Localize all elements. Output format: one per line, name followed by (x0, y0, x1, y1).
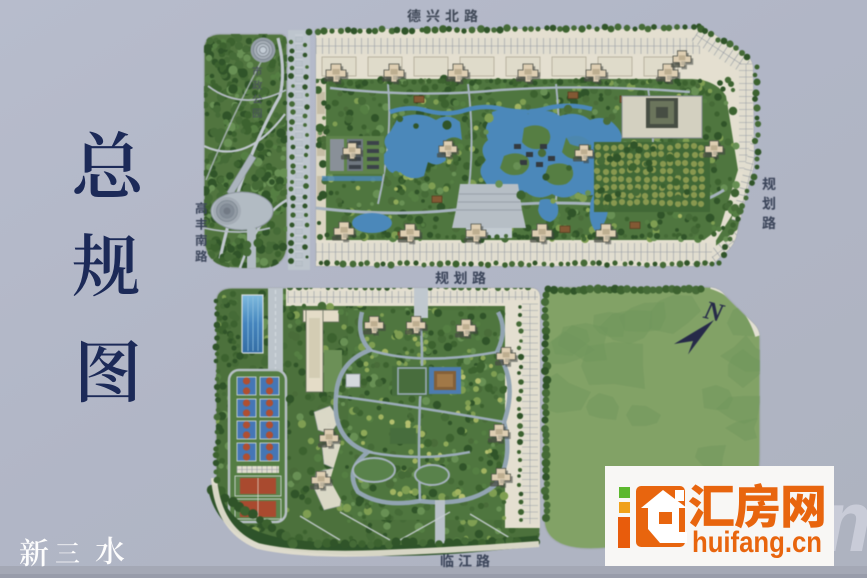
svg-text:huifang.cn: huifang.cn (692, 526, 822, 559)
